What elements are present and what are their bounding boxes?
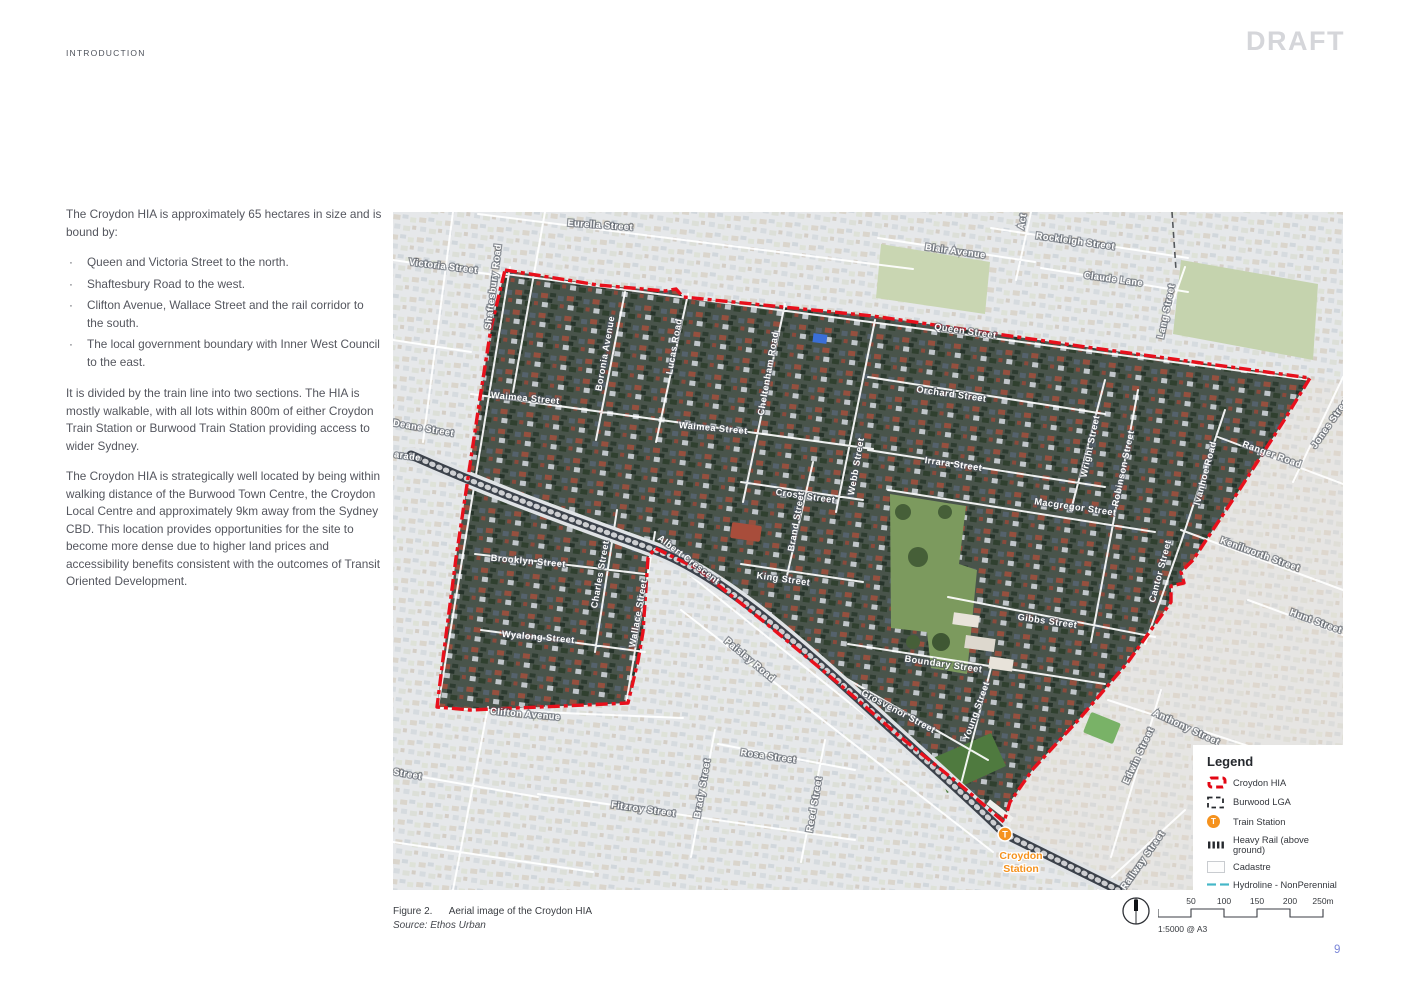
section-label: INTRODUCTION	[66, 48, 146, 58]
page-number: 9	[1334, 944, 1340, 956]
legend-label: Cadastre	[1233, 862, 1271, 872]
croydon-hia-swatch-icon	[1207, 776, 1233, 789]
list-item-text: The local government boundary with Inner…	[87, 337, 380, 369]
legend-title: Legend	[1207, 754, 1343, 769]
hydroline-icon	[1207, 882, 1233, 887]
scale-tick: 200	[1283, 896, 1297, 906]
bullet-glyph: ·	[69, 336, 73, 354]
legend-item-cadastre: Cadastre	[1207, 861, 1343, 873]
legend-item-hydroline: Hydroline - NonPerennial	[1207, 880, 1343, 890]
scale-tick: 150	[1250, 896, 1264, 906]
scale-bar-graphic	[1158, 906, 1328, 920]
scale-tick: 50	[1186, 896, 1195, 906]
body-paragraph: It is divided by the train line into two…	[66, 385, 382, 455]
intro-paragraph: The Croydon HIA is approximately 65 hect…	[66, 206, 382, 241]
document-page: INTRODUCTION DRAFT The Croydon HIA is ap…	[0, 0, 1410, 996]
legend-item-train-station: T Train Station	[1207, 815, 1343, 828]
scale-ratio: 1:5000 @ A3	[1158, 924, 1328, 934]
aerial-map-figure: Eurella StreetVictoria StreetShaftesbury…	[393, 212, 1343, 890]
scale-tick: 100	[1217, 896, 1231, 906]
body-paragraph: The Croydon HIA is strategically well lo…	[66, 468, 382, 591]
bullet-glyph: ·	[69, 276, 73, 294]
bullet-glyph: ·	[69, 297, 73, 315]
train-station-label: CroydonStation	[999, 850, 1042, 875]
list-item: ·Clifton Avenue, Wallace Street and the …	[66, 297, 382, 332]
legend-label: Train Station	[1233, 817, 1285, 827]
legend-label: Burwood LGA	[1233, 797, 1291, 807]
north-arrow-icon	[1121, 896, 1151, 933]
bullet-glyph: ·	[69, 254, 73, 272]
train-station-icon: T	[1207, 815, 1233, 828]
boundary-list: ·Queen and Victoria Street to the north.…	[66, 254, 382, 371]
burwood-lga-swatch-icon	[1207, 796, 1233, 809]
legend-item-burwood-lga: Burwood LGA	[1207, 796, 1343, 809]
legend-label: Heavy Rail (above ground)	[1233, 835, 1343, 855]
cadastre-icon	[1207, 861, 1233, 873]
heavy-rail-icon	[1207, 841, 1233, 849]
list-item: ·The local government boundary with Inne…	[66, 336, 382, 371]
legend-item-heavy-rail: Heavy Rail (above ground)	[1207, 835, 1343, 855]
list-item-text: Queen and Victoria Street to the north.	[87, 255, 289, 269]
list-item: ·Queen and Victoria Street to the north.	[66, 254, 382, 272]
list-item-text: Clifton Avenue, Wallace Street and the r…	[87, 298, 364, 330]
train-station-marker: T	[998, 827, 1012, 841]
scale-tick-labels: 50 100 150 200 250m	[1158, 896, 1328, 906]
legend-item-croydon-hia: Croydon HIA	[1207, 776, 1343, 789]
figure-number: Figure 2.	[393, 906, 432, 917]
svg-text:T: T	[1002, 830, 1008, 840]
map-legend: Legend Croydon HIA Burwood LGA T Train S…	[1193, 745, 1343, 890]
legend-label: Hydroline - NonPerennial	[1233, 880, 1337, 890]
figure-title: Aerial image of the Croydon HIA	[449, 906, 592, 917]
list-item: ·Shaftesbury Road to the west.	[66, 276, 382, 294]
station-label-line: Station	[1003, 863, 1039, 875]
list-item-text: Shaftesbury Road to the west.	[87, 277, 245, 291]
figure-caption: Figure 2. Aerial image of the Croydon HI…	[393, 906, 592, 931]
body-text-column: The Croydon HIA is approximately 65 hect…	[66, 206, 382, 604]
scale-tick: 250m	[1312, 896, 1333, 906]
scale-bar: 50 100 150 200 250m 1:5000 @ A3	[1158, 896, 1328, 934]
figure-source: Source: Ethos Urban	[393, 920, 592, 931]
draft-watermark: DRAFT	[1246, 26, 1345, 57]
station-label-line: Croydon	[999, 850, 1042, 862]
legend-label: Croydon HIA	[1233, 778, 1286, 788]
